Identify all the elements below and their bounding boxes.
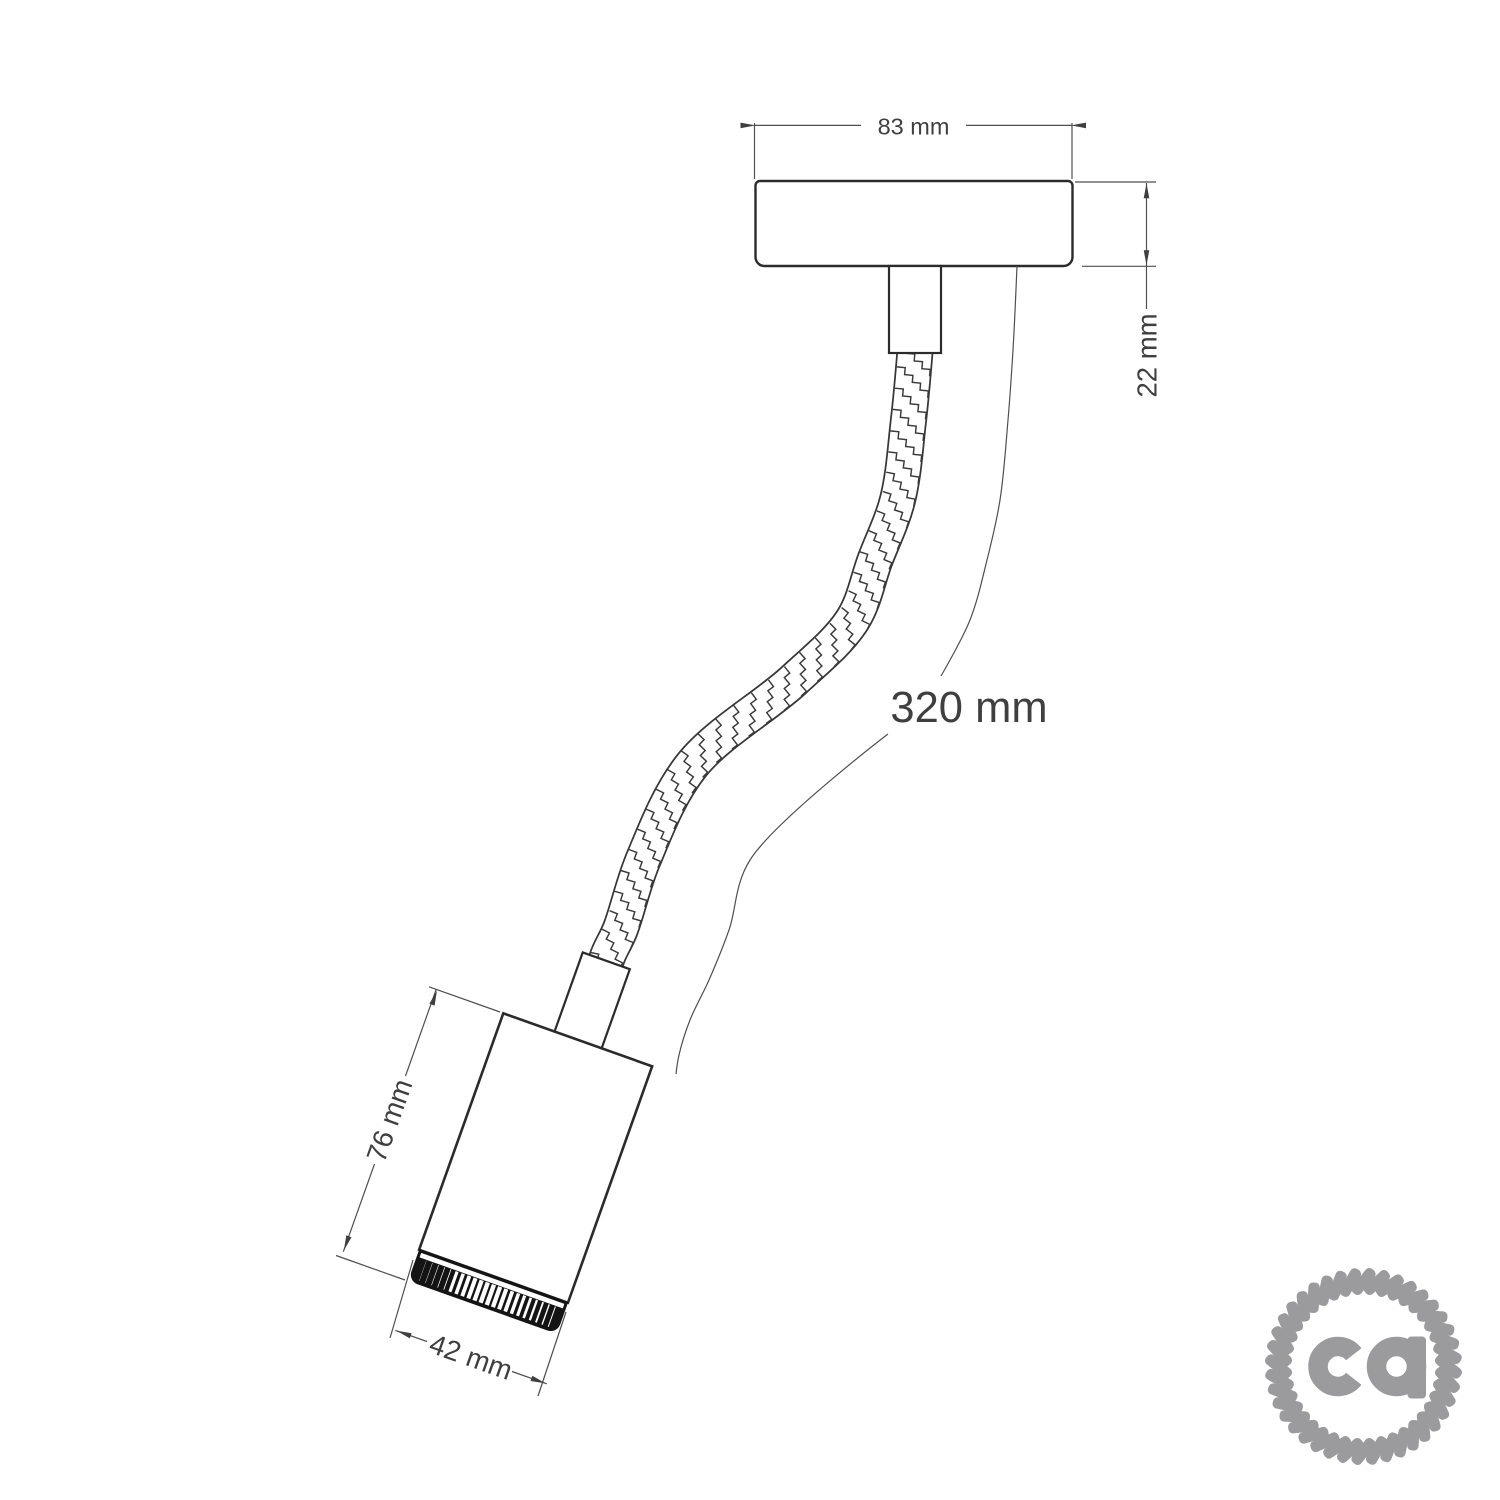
svg-text:83 mm: 83 mm — [878, 114, 950, 140]
svg-text:22 mm: 22 mm — [1132, 313, 1163, 397]
svg-text:320 mm: 320 mm — [890, 684, 1047, 732]
